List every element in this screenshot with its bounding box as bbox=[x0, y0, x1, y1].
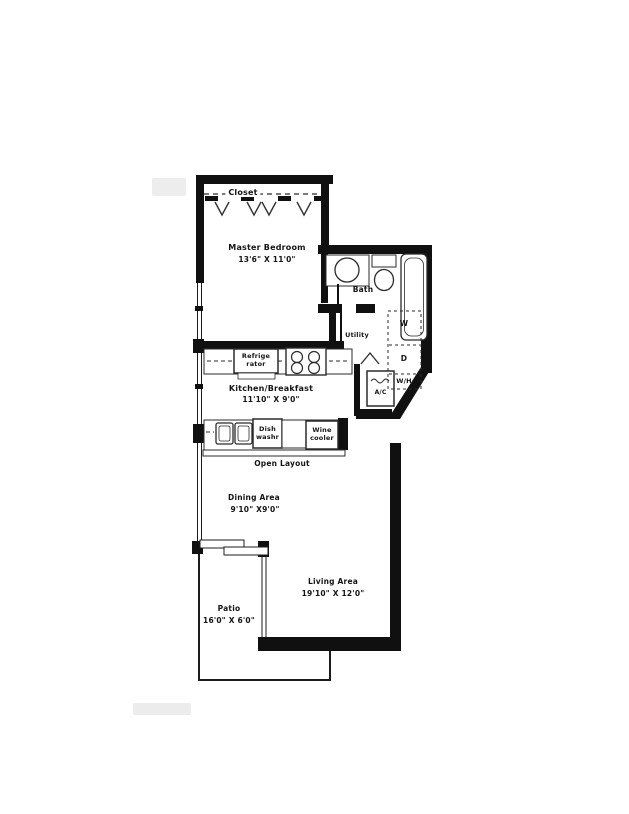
wall-counter-end bbox=[338, 418, 348, 450]
closet-stub bbox=[205, 196, 218, 201]
wall-stub-vertical bbox=[329, 313, 336, 344]
master-bedroom-dimensions: 13'6" X 11'0" bbox=[238, 256, 295, 265]
floor-plan-page: Closet Master Bedroom 13'6" X 11'0" Bath… bbox=[0, 0, 629, 814]
hanger-icon bbox=[215, 202, 229, 215]
floor-plan-drawing bbox=[0, 0, 629, 814]
wine-cooler-label-line1: Wine bbox=[310, 426, 334, 434]
dryer-label: D bbox=[401, 355, 407, 364]
wine-cooler-label: Wine cooler bbox=[310, 426, 334, 442]
living-label: Living Area bbox=[308, 578, 358, 587]
counter-blank-box bbox=[282, 420, 306, 448]
sink-bowl-inner bbox=[238, 426, 249, 441]
refrigerator-label-line1: Refrige bbox=[242, 352, 270, 360]
window-mullion bbox=[195, 384, 203, 389]
refrigerator-label: Refrige rator bbox=[242, 352, 270, 368]
closet-stub bbox=[314, 196, 321, 201]
washer-label: W bbox=[400, 320, 408, 329]
hanger-icon bbox=[247, 202, 261, 215]
ac-door-chevron bbox=[361, 353, 379, 364]
closet-label: Closet bbox=[225, 188, 260, 197]
sliding-door bbox=[200, 540, 268, 555]
wall-bedroom-top bbox=[196, 175, 333, 184]
wall-stub-right bbox=[356, 304, 375, 313]
utility-door-leaf bbox=[340, 313, 342, 346]
bar-overhang bbox=[203, 450, 345, 456]
bath-door-leaf bbox=[337, 284, 339, 306]
wall-living-bottom bbox=[258, 637, 401, 651]
wall-bath-top bbox=[318, 245, 431, 254]
patio-label: Patio bbox=[218, 605, 241, 614]
wine-cooler-label-line2: cooler bbox=[310, 434, 334, 442]
wall-bedroom-left bbox=[196, 175, 204, 283]
patio-dimensions: 16'0" X 6'0" bbox=[203, 617, 255, 626]
refrigerator-base bbox=[238, 373, 275, 379]
living-dimensions: 19'10" X 12'0" bbox=[302, 590, 365, 599]
dining-dimensions: 9'10" X9'0" bbox=[230, 506, 279, 515]
burner bbox=[292, 352, 303, 363]
dishwasher-label-line2: washr bbox=[256, 433, 279, 441]
ac-wave bbox=[371, 379, 389, 383]
open-layout-label: Open Layout bbox=[254, 460, 310, 469]
closet-stub bbox=[278, 196, 291, 201]
ac-label: A/C bbox=[375, 390, 387, 397]
master-bedroom-label: Master Bedroom bbox=[228, 243, 305, 252]
toilet-tank bbox=[372, 255, 396, 267]
dishwasher-label: Dish washr bbox=[256, 425, 279, 441]
sink-basin bbox=[335, 258, 359, 282]
kitchen-dimensions: 11'10" X 9'0" bbox=[242, 396, 299, 405]
water-heater-label: W/H bbox=[396, 378, 412, 385]
wall-living-right bbox=[390, 443, 401, 651]
burner bbox=[309, 363, 320, 374]
wall-ac-left bbox=[354, 364, 360, 416]
scan-artifact bbox=[133, 703, 191, 715]
refrigerator-label-line2: rator bbox=[242, 360, 270, 368]
hanger-icon bbox=[297, 202, 311, 215]
dining-label: Dining Area bbox=[228, 494, 280, 503]
window-mullion bbox=[195, 306, 203, 311]
kitchen-upper-counter bbox=[204, 348, 352, 379]
wall-bedroom-right bbox=[321, 184, 329, 245]
dishwasher-label-line1: Dish bbox=[256, 425, 279, 433]
closet-symbols bbox=[204, 194, 321, 215]
kitchen-label: Kitchen/Breakfast bbox=[229, 384, 313, 393]
utility-label: Utility bbox=[342, 332, 372, 339]
scan-artifact bbox=[152, 178, 186, 196]
sliding-door-panel bbox=[224, 547, 268, 555]
sink-bowl-inner bbox=[219, 426, 230, 441]
wall-entry bbox=[356, 409, 392, 419]
burner bbox=[309, 352, 320, 363]
hanger-icon bbox=[262, 202, 276, 215]
bath-label: Bath bbox=[353, 286, 374, 295]
burner bbox=[292, 363, 303, 374]
toilet-bowl bbox=[375, 270, 394, 291]
wall-left-corner bbox=[193, 424, 205, 443]
ac-closet bbox=[361, 353, 394, 406]
